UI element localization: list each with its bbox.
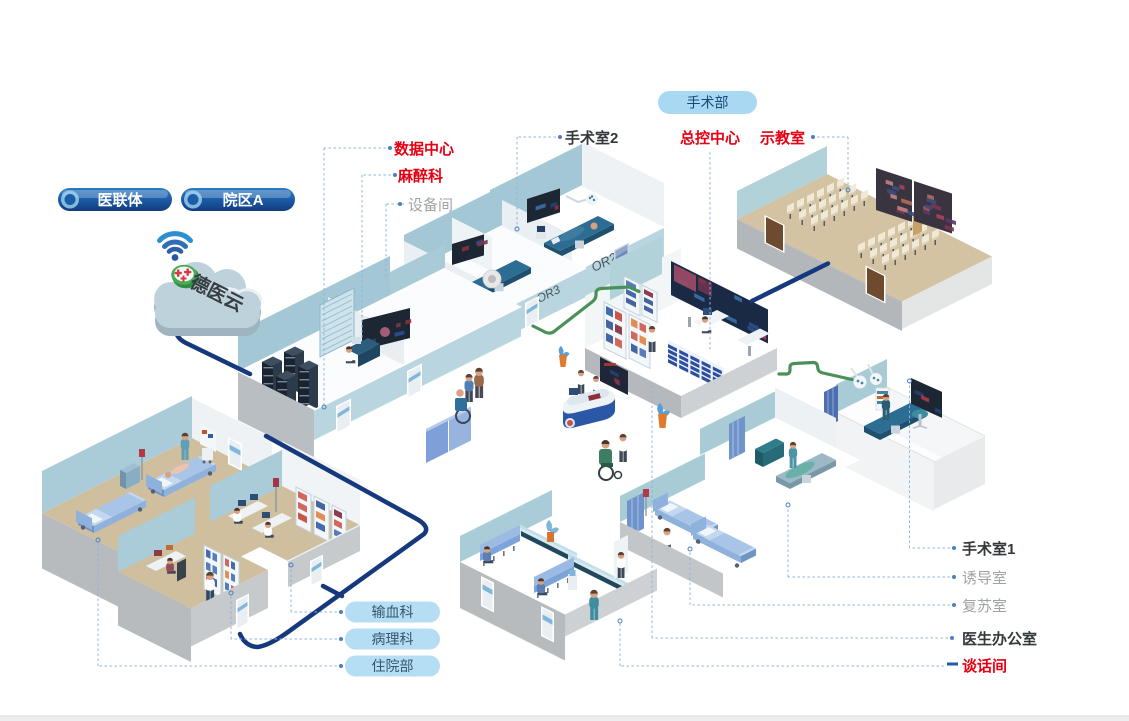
svg-text:总控中心: 总控中心 <box>680 129 740 147</box>
svg-text:麻醉科: 麻醉科 <box>397 167 443 185</box>
svg-text:数据中心: 数据中心 <box>394 140 454 158</box>
svg-text:手术室1: 手术室1 <box>962 540 1015 558</box>
svg-text:复苏室: 复苏室 <box>962 597 1007 615</box>
svg-text:住院部: 住院部 <box>372 658 414 674</box>
svg-text:输血科: 输血科 <box>372 604 414 620</box>
svg-text:手术室2: 手术室2 <box>565 129 618 147</box>
svg-text:设备间: 设备间 <box>408 197 453 214</box>
svg-text:谈话间: 谈话间 <box>962 657 1007 675</box>
svg-text:病理科: 病理科 <box>372 631 414 647</box>
svg-text:医联体: 医联体 <box>97 191 143 209</box>
svg-text:示教室: 示教室 <box>760 129 805 147</box>
svg-text:手术部: 手术部 <box>687 95 729 111</box>
svg-text:医生办公室: 医生办公室 <box>962 630 1037 648</box>
svg-text:诱导室: 诱导室 <box>962 570 1007 587</box>
svg-text:院区A: 院区A <box>223 191 264 209</box>
